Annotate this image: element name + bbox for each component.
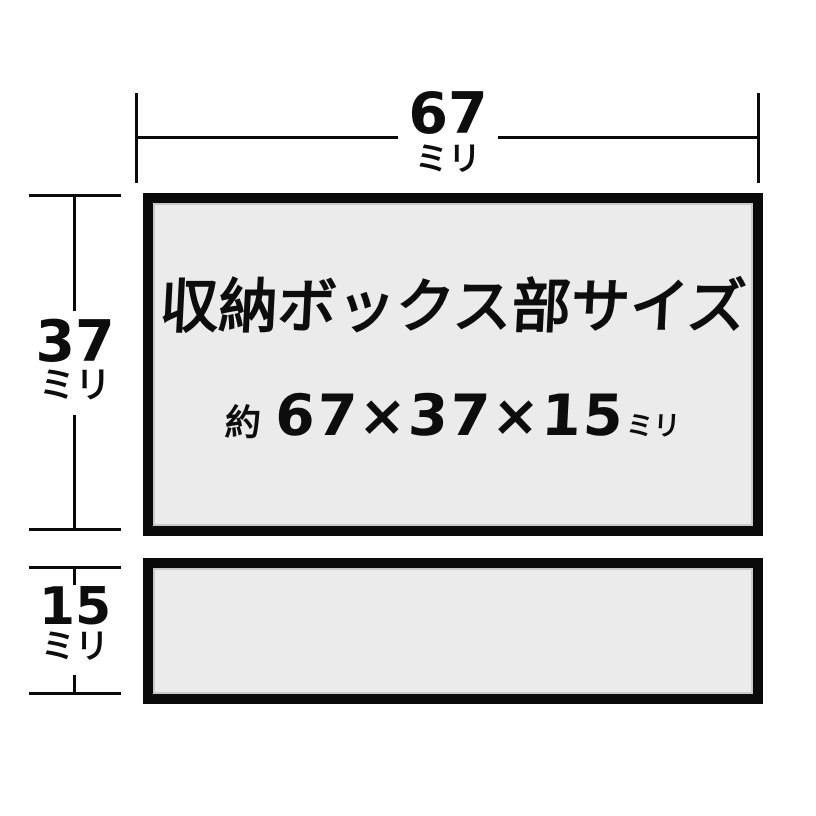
storage-box-title: 収納ボックス部サイズ — [141, 277, 764, 336]
height-dimension-unit: ミリ — [10, 368, 140, 404]
depth-dimension-value: 15 — [10, 581, 140, 633]
storage-box-size-line: 約67×37×15ミリ — [142, 388, 765, 445]
width-dimension-value: 67 — [398, 86, 497, 143]
storage-box-approx-label: 約 — [224, 403, 262, 444]
depth-dimension-line-lower — [73, 675, 76, 694]
width-dimension-value-row: 67 — [137, 86, 759, 143]
height-dimension-line-upper — [73, 194, 76, 311]
size-diagram: 67 ミリ 37 ミリ 15 ミリ 収納ボックス部サイズ 約67×37×15ミリ — [0, 0, 816, 816]
storage-box-size-value: 67×37×15 — [274, 383, 627, 449]
storage-box-rect — [143, 193, 763, 536]
lid-section-rect — [143, 558, 763, 704]
height-dimension-line-lower — [73, 415, 76, 531]
height-dimension-value: 37 — [10, 314, 140, 371]
width-dimension-unit: ミリ — [137, 142, 759, 175]
depth-dimension-unit: ミリ — [10, 630, 140, 664]
storage-box-size-unit: ミリ — [625, 411, 681, 442]
